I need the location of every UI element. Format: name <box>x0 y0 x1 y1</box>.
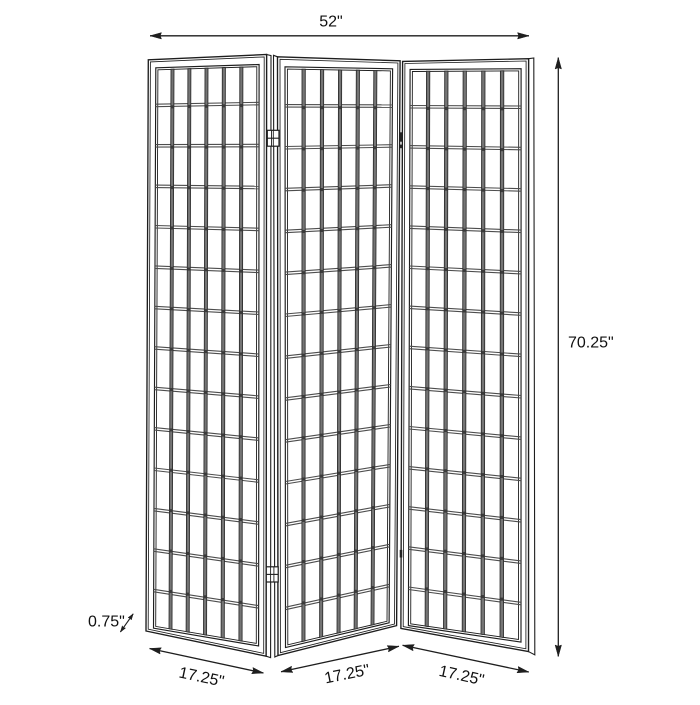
svg-text:52": 52" <box>319 14 342 31</box>
svg-text:0.75": 0.75" <box>88 614 125 631</box>
svg-text:70.25": 70.25" <box>568 335 614 352</box>
